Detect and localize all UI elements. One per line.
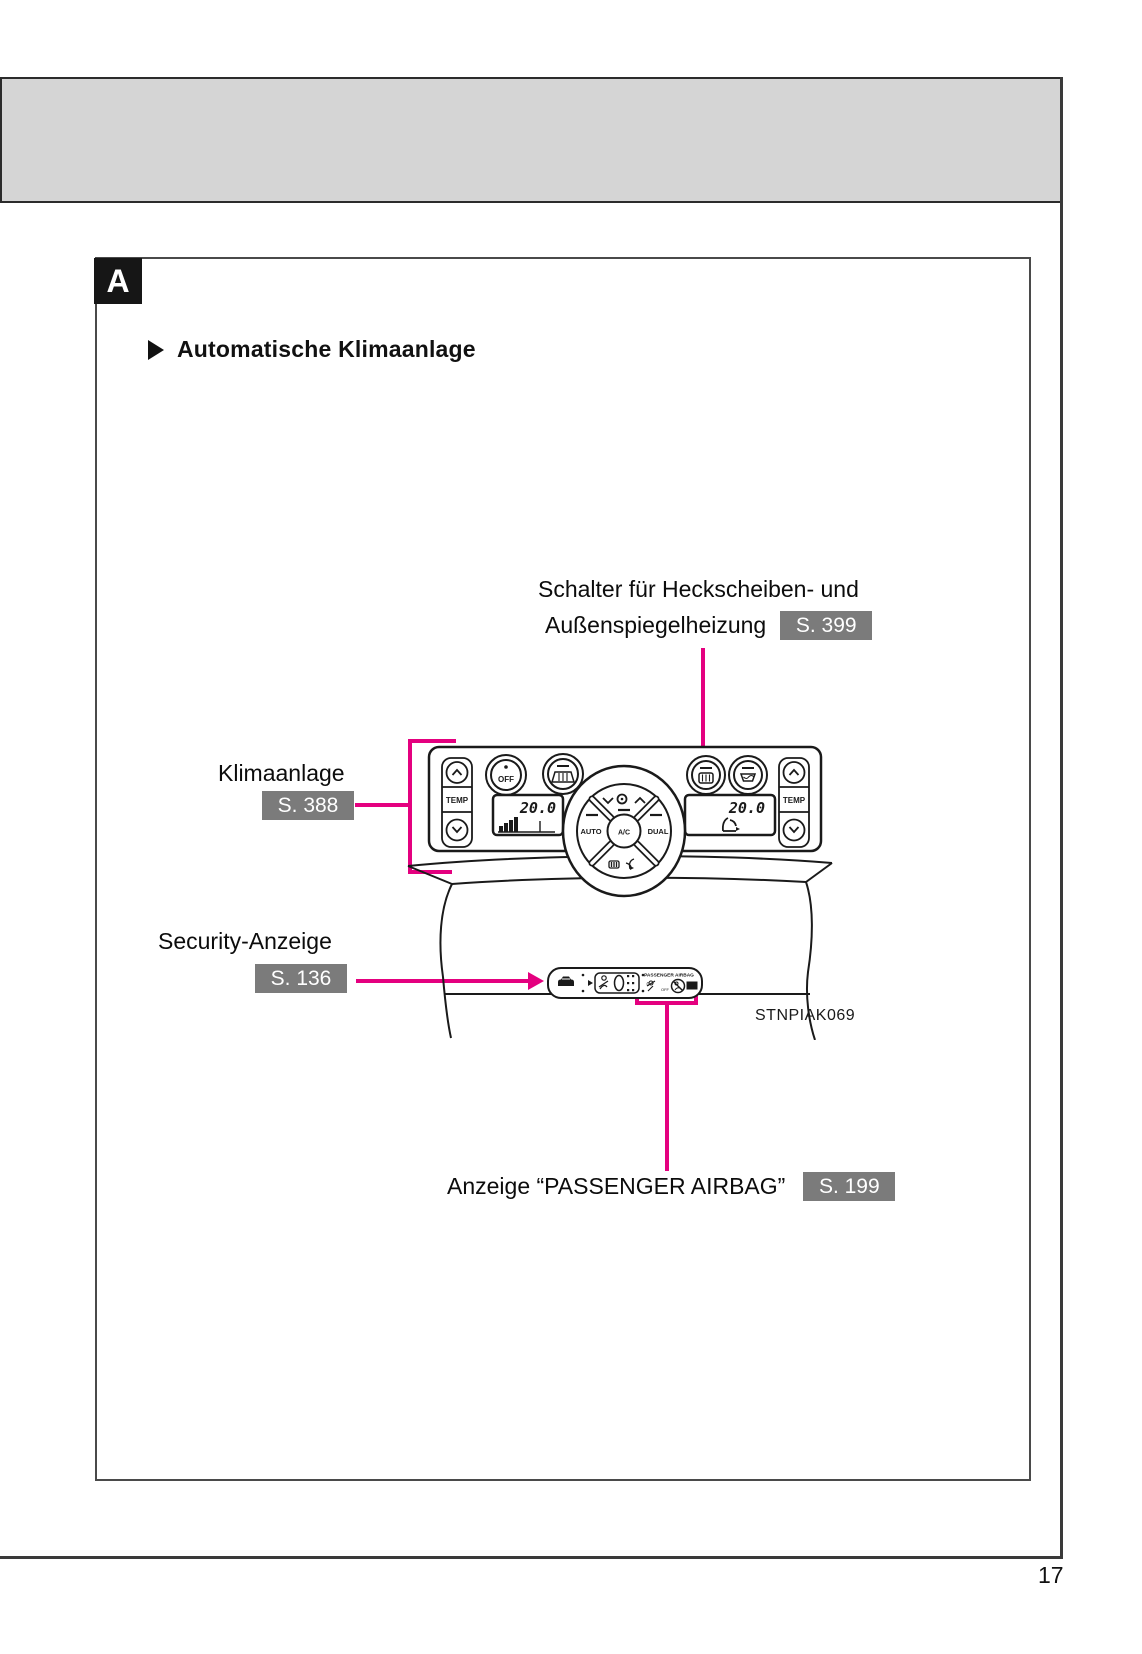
figure-heading: Automatische Klimaanlage [148, 336, 476, 363]
off-button-label: OFF [498, 775, 514, 784]
page-ref-badge-security: S. 136 [255, 964, 347, 993]
page-ref-badge-climate: S. 388 [262, 791, 354, 820]
callout-security-label: Security-Anzeige [158, 928, 332, 955]
callout-defroster-line2-row: Außenspiegelheizung S. 399 [545, 611, 872, 640]
dash-band-left-corner [408, 866, 452, 884]
page-ref-badge-airbag: S. 199 [803, 1172, 895, 1201]
on-badge-label: ON [688, 984, 696, 990]
callout-climate-label: Klimaanlage [218, 760, 345, 787]
page-footer-rule [0, 1556, 1063, 1559]
temp-label-left: TEMP [446, 796, 469, 805]
callout-defroster-line2: Außenspiegelheizung [545, 612, 766, 639]
auto-label: AUTO [580, 827, 601, 836]
climate-panel-illustration: TEMP TEMP OFF [390, 690, 950, 1040]
manual-page: A 17 Automatische Klimaanlage Schalter f… [0, 0, 1142, 1654]
console-left-contour [440, 884, 452, 1038]
page-margin-vertical-rule [1060, 77, 1063, 1558]
console-right-contour [806, 882, 815, 1040]
ac-button-label: A/C [618, 830, 630, 837]
figure-heading-label: Automatische Klimaanlage [177, 336, 476, 363]
page-number: 17 [1038, 1562, 1064, 1589]
driver-temp-value: 20.0 [519, 799, 556, 817]
page-ref-badge-defroster: S. 399 [780, 611, 872, 640]
callout-defroster-line1: Schalter für Heckscheiben- und [538, 576, 859, 603]
dual-label: DUAL [648, 827, 669, 836]
airbag-off-label: OFF [661, 987, 670, 992]
callout-airbag-row: Anzeige “PASSENGER AIRBAG” S. 199 [447, 1172, 895, 1201]
off-indicator-dot [504, 765, 508, 769]
passenger-airbag-title: PASSENGER AIRBAG [644, 973, 694, 979]
callout-airbag-label: Anzeige “PASSENGER AIRBAG” [447, 1173, 785, 1200]
dash-band-right-corner [806, 863, 832, 882]
chapter-header-band [0, 77, 1062, 203]
temp-label-right: TEMP [783, 796, 806, 805]
triangle-bullet-icon [148, 340, 164, 360]
passenger-temp-value: 20.0 [728, 799, 765, 817]
section-tab: A [94, 258, 142, 304]
